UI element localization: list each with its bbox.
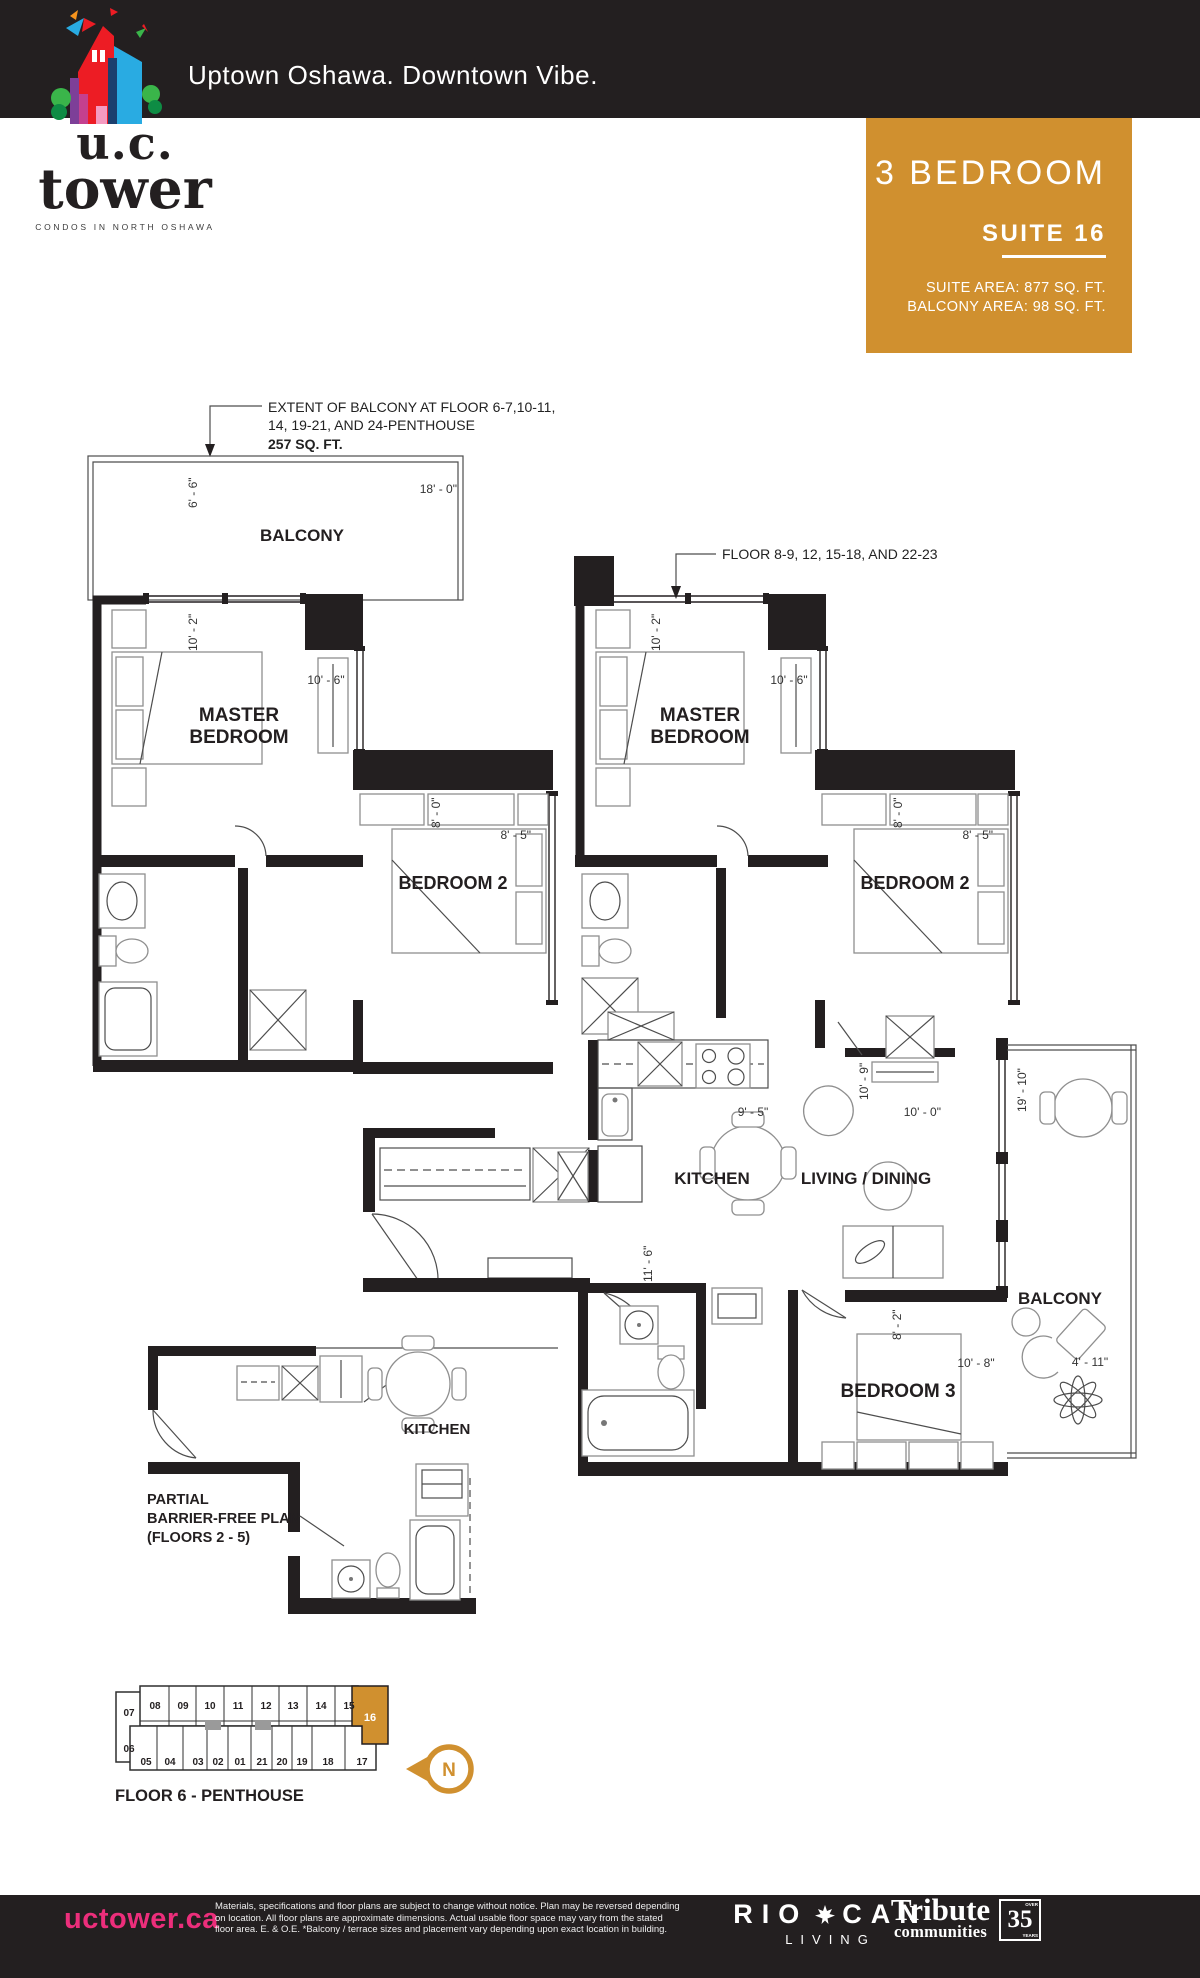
partial-label-1: PARTIAL: [147, 1492, 209, 1508]
partial-barrier-free-plan: KITCHEN PARTIAL BARRIER-FREE PLAN (FLOOR…: [147, 1336, 558, 1614]
kitchen-label: KITCHEN: [674, 1169, 750, 1188]
right-master-closet-dim: 10' - 6": [770, 673, 807, 687]
entry-corridor: 11' - 6": [363, 1128, 655, 1292]
living-dining: LIVING / DINING 10' - 9" 10' - 0": [795, 1062, 943, 1278]
bedroom3-label: BEDROOM 3: [840, 1381, 955, 1402]
riocan-text-left: RIO: [733, 1899, 808, 1930]
disclaimer-line-1: Materials, specifications and floor plan…: [215, 1901, 690, 1913]
keyplan-unit-09: 09: [177, 1701, 189, 1712]
lower-bathroom: [582, 1288, 762, 1456]
note-extent-line1: EXTENT OF BALCONY AT FLOOR 6-7,10-11,: [268, 399, 555, 415]
keyplan-unit-20: 20: [276, 1757, 288, 1768]
keyplan-unit-21: 21: [256, 1757, 268, 1768]
north-arrow: N: [406, 1747, 471, 1791]
keyplan-unit-18: 18: [322, 1757, 334, 1768]
left-master-label-1: MASTER: [199, 705, 280, 726]
note-extent-area: 257 SQ. FT.: [268, 436, 343, 452]
floorplan-page: Uptown Oshawa. Downtown Vibe. u.c. tower…: [0, 0, 1200, 1978]
bedroom3: BEDROOM 3 8' - 2" 10' - 8": [802, 1290, 995, 1469]
right-bedroom2-width-dim: 8' - 0": [891, 797, 905, 828]
keyplan-unit-10: 10: [204, 1701, 216, 1712]
keyplan-unit-16: 16: [364, 1712, 376, 1724]
tribute-word: Tribute: [888, 1895, 993, 1925]
plan-left-balcony: BALCONY 6' - 6" 18' - 0": [88, 456, 463, 600]
left-bedroom2-depth-dim: 8' - 5": [500, 828, 531, 842]
keyplan-unit-03: 03: [192, 1757, 204, 1768]
right-master-label-1: MASTER: [660, 705, 741, 726]
keyplan-unit-05: 05: [140, 1757, 152, 1768]
disclaimer-line-2: on location. All floor plans are approxi…: [215, 1913, 690, 1925]
hall-dim: 11' - 6": [641, 1246, 655, 1282]
keyplan-unit-08: 08: [149, 1701, 161, 1712]
keyplan-unit-14: 14: [315, 1701, 327, 1712]
years-number: 35: [1008, 1906, 1033, 1933]
partial-label-2: BARRIER-FREE PLAN: [147, 1511, 300, 1527]
plan-right-bedroom2: BEDROOM 2 8' - 0" 8' - 5": [822, 794, 1008, 953]
living-depth-dim: 10' - 9": [857, 1063, 871, 1100]
living-width-dim: 10' - 0": [904, 1105, 941, 1119]
left-master-width-dim: 10' - 2": [186, 614, 200, 651]
partial-label-3: (FLOORS 2 - 5): [147, 1530, 250, 1546]
keyplan-unit-06: 06: [123, 1744, 135, 1755]
partial-kitchen-label: KITCHEN: [404, 1421, 471, 1438]
note-extent-line2: 14, 19-21, AND 24-PENTHOUSE: [268, 417, 475, 433]
plan-left-bathroom: [99, 874, 306, 1056]
maple-leaf-icon: [815, 1905, 835, 1925]
keyplan-unit-02: 02: [212, 1757, 224, 1768]
living-dining-label: LIVING / DINING: [801, 1169, 931, 1188]
left-balcony-width-dim: 18' - 0": [420, 482, 457, 496]
left-bedroom2-label: BEDROOM 2: [398, 873, 507, 893]
plan-left-bedroom2: BEDROOM 2 8' - 0" 8' - 5": [353, 794, 553, 1074]
floor-key-plan: 07 08 09 10 11 12 13 14 15 16 06 05 04 0…: [115, 1686, 388, 1805]
disclaimer-text: Materials, specifications and floor plan…: [215, 1901, 690, 1936]
right-balcony-depth-dim: 19' - 10": [1015, 1068, 1029, 1112]
bedroom3-depth-dim: 8' - 2": [890, 1309, 904, 1340]
kitchen-dim: 9' - 5": [738, 1105, 769, 1119]
bedroom3-width-dim: 10' - 8": [957, 1356, 994, 1370]
right-bedroom2-label: BEDROOM 2: [860, 873, 969, 893]
left-bedroom2-width-dim: 8' - 0": [429, 797, 443, 828]
left-balcony-label: BALCONY: [260, 526, 345, 545]
keyplan-unit-07: 07: [123, 1708, 135, 1719]
keyplan-unit-12: 12: [260, 1701, 272, 1712]
tribute-communities-logo: Tribute communities: [888, 1895, 993, 1939]
years-over-label: OVER: [1025, 1902, 1038, 1907]
floorplan-drawing: EXTENT OF BALCONY AT FLOOR 6-7,10-11, 14…: [0, 0, 1200, 1978]
floors-note: FLOOR 8-9, 12, 15-18, AND 22-23: [671, 546, 938, 599]
left-master-label-2: BEDROOM: [189, 727, 288, 748]
extended-balcony-note: EXTENT OF BALCONY AT FLOOR 6-7,10-11, 14…: [205, 399, 555, 457]
keyplan-unit-13: 13: [287, 1701, 299, 1712]
keyplan-unit-15: 15: [343, 1701, 355, 1712]
left-master-closet-dim: 10' - 6": [307, 673, 344, 687]
note-floors: FLOOR 8-9, 12, 15-18, AND 22-23: [722, 546, 938, 562]
right-balcony: 19' - 10" BALCONY 4' - 11": [1007, 1045, 1136, 1458]
right-master-label-2: BEDROOM: [650, 727, 749, 748]
keyplan-floor-label: FLOOR 6 - PENTHOUSE: [115, 1787, 304, 1805]
tribute-communities-word: communities: [888, 1925, 993, 1939]
left-balcony-depth-dim: 6' - 6": [186, 477, 200, 508]
tribute-35-years-badge: OVER 35 YEARS: [999, 1899, 1041, 1941]
disclaimer-line-3: floor area. E. & O.E. *Balcony / terrace…: [215, 1924, 690, 1936]
right-balcony-label: BALCONY: [1018, 1289, 1103, 1308]
keyplan-unit-11: 11: [233, 1701, 244, 1712]
footer-bar: uctower.ca Materials, specifications and…: [0, 1895, 1200, 1978]
north-label: N: [442, 1760, 456, 1781]
keyplan-unit-17: 17: [356, 1757, 368, 1768]
years-label: YEARS: [1022, 1933, 1038, 1938]
website-link[interactable]: uctower.ca: [64, 1903, 219, 1936]
keyplan-unit-01: 01: [234, 1757, 246, 1768]
keyplan-unit-19: 19: [296, 1757, 308, 1768]
right-bedroom2-depth-dim: 8' - 5": [962, 828, 993, 842]
right-master-width-dim: 10' - 2": [649, 614, 663, 651]
right-balcony-width-dim: 4' - 11": [1072, 1355, 1108, 1369]
keyplan-unit-04: 04: [164, 1757, 176, 1768]
